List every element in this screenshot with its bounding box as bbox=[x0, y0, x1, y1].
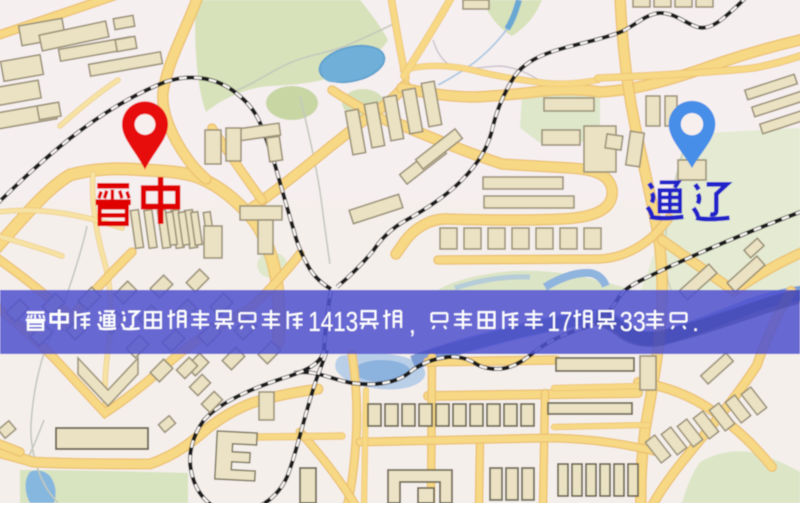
svg-text:17: 17 bbox=[547, 306, 572, 337]
svg-text:.: . bbox=[692, 310, 699, 337]
svg-text:1413: 1413 bbox=[308, 306, 358, 337]
svg-text:,: , bbox=[409, 309, 416, 339]
svg-text:33: 33 bbox=[620, 306, 646, 337]
